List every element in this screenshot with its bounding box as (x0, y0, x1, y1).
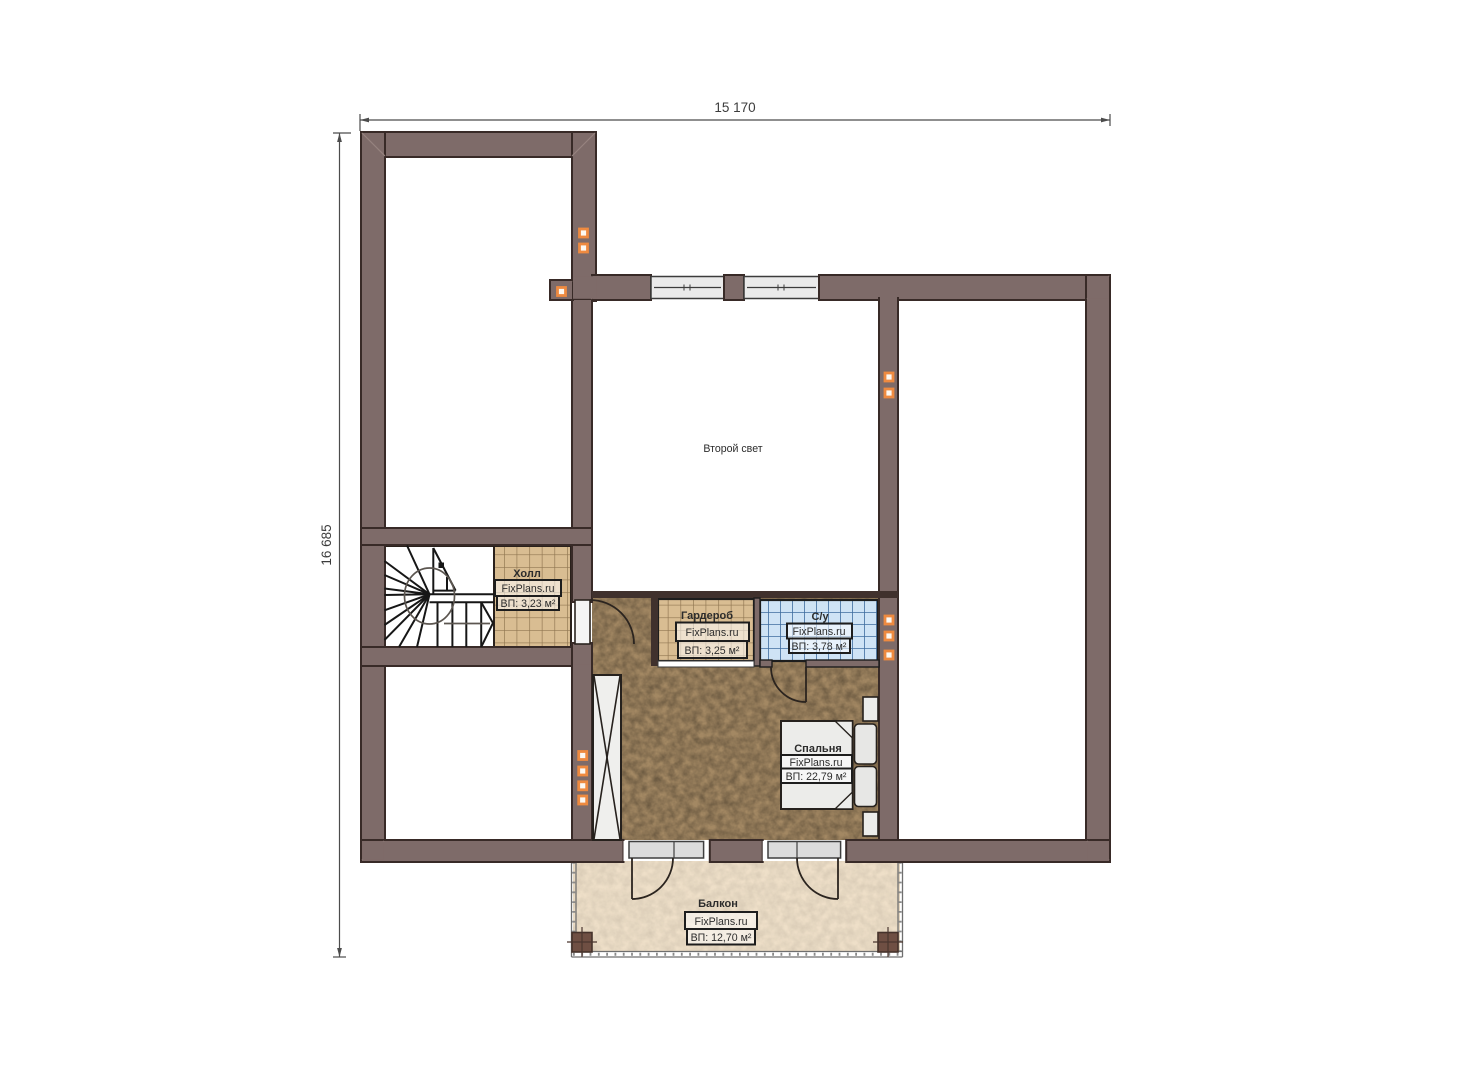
svg-text:Балкон: Балкон (698, 898, 738, 910)
svg-text:FixPlans.ru: FixPlans.ru (686, 627, 739, 639)
svg-text:Гардероб: Гардероб (681, 610, 733, 622)
svg-text:FixPlans.ru: FixPlans.ru (790, 757, 843, 769)
svg-text:FixPlans.ru: FixPlans.ru (793, 626, 846, 638)
svg-text:16 685: 16 685 (319, 524, 334, 565)
svg-text:ВП: 12,70 м²: ВП: 12,70 м² (691, 932, 752, 944)
svg-text:15 170: 15 170 (714, 100, 755, 115)
svg-text:С/у: С/у (811, 611, 829, 623)
svg-text:ВП: 3,78 м²: ВП: 3,78 м² (792, 641, 847, 653)
svg-text:ВП: 3,23 м²: ВП: 3,23 м² (501, 598, 556, 610)
svg-text:ВП: 3,25 м²: ВП: 3,25 м² (685, 645, 740, 657)
svg-text:FixPlans.ru: FixPlans.ru (695, 916, 748, 928)
svg-text:Спальня: Спальня (794, 743, 842, 755)
svg-text:ВП: 22,79 м²: ВП: 22,79 м² (786, 771, 847, 783)
svg-text:FixPlans.ru: FixPlans.ru (502, 583, 555, 595)
svg-text:Второй свет: Второй свет (703, 443, 762, 455)
svg-text:Холл: Холл (513, 568, 541, 580)
